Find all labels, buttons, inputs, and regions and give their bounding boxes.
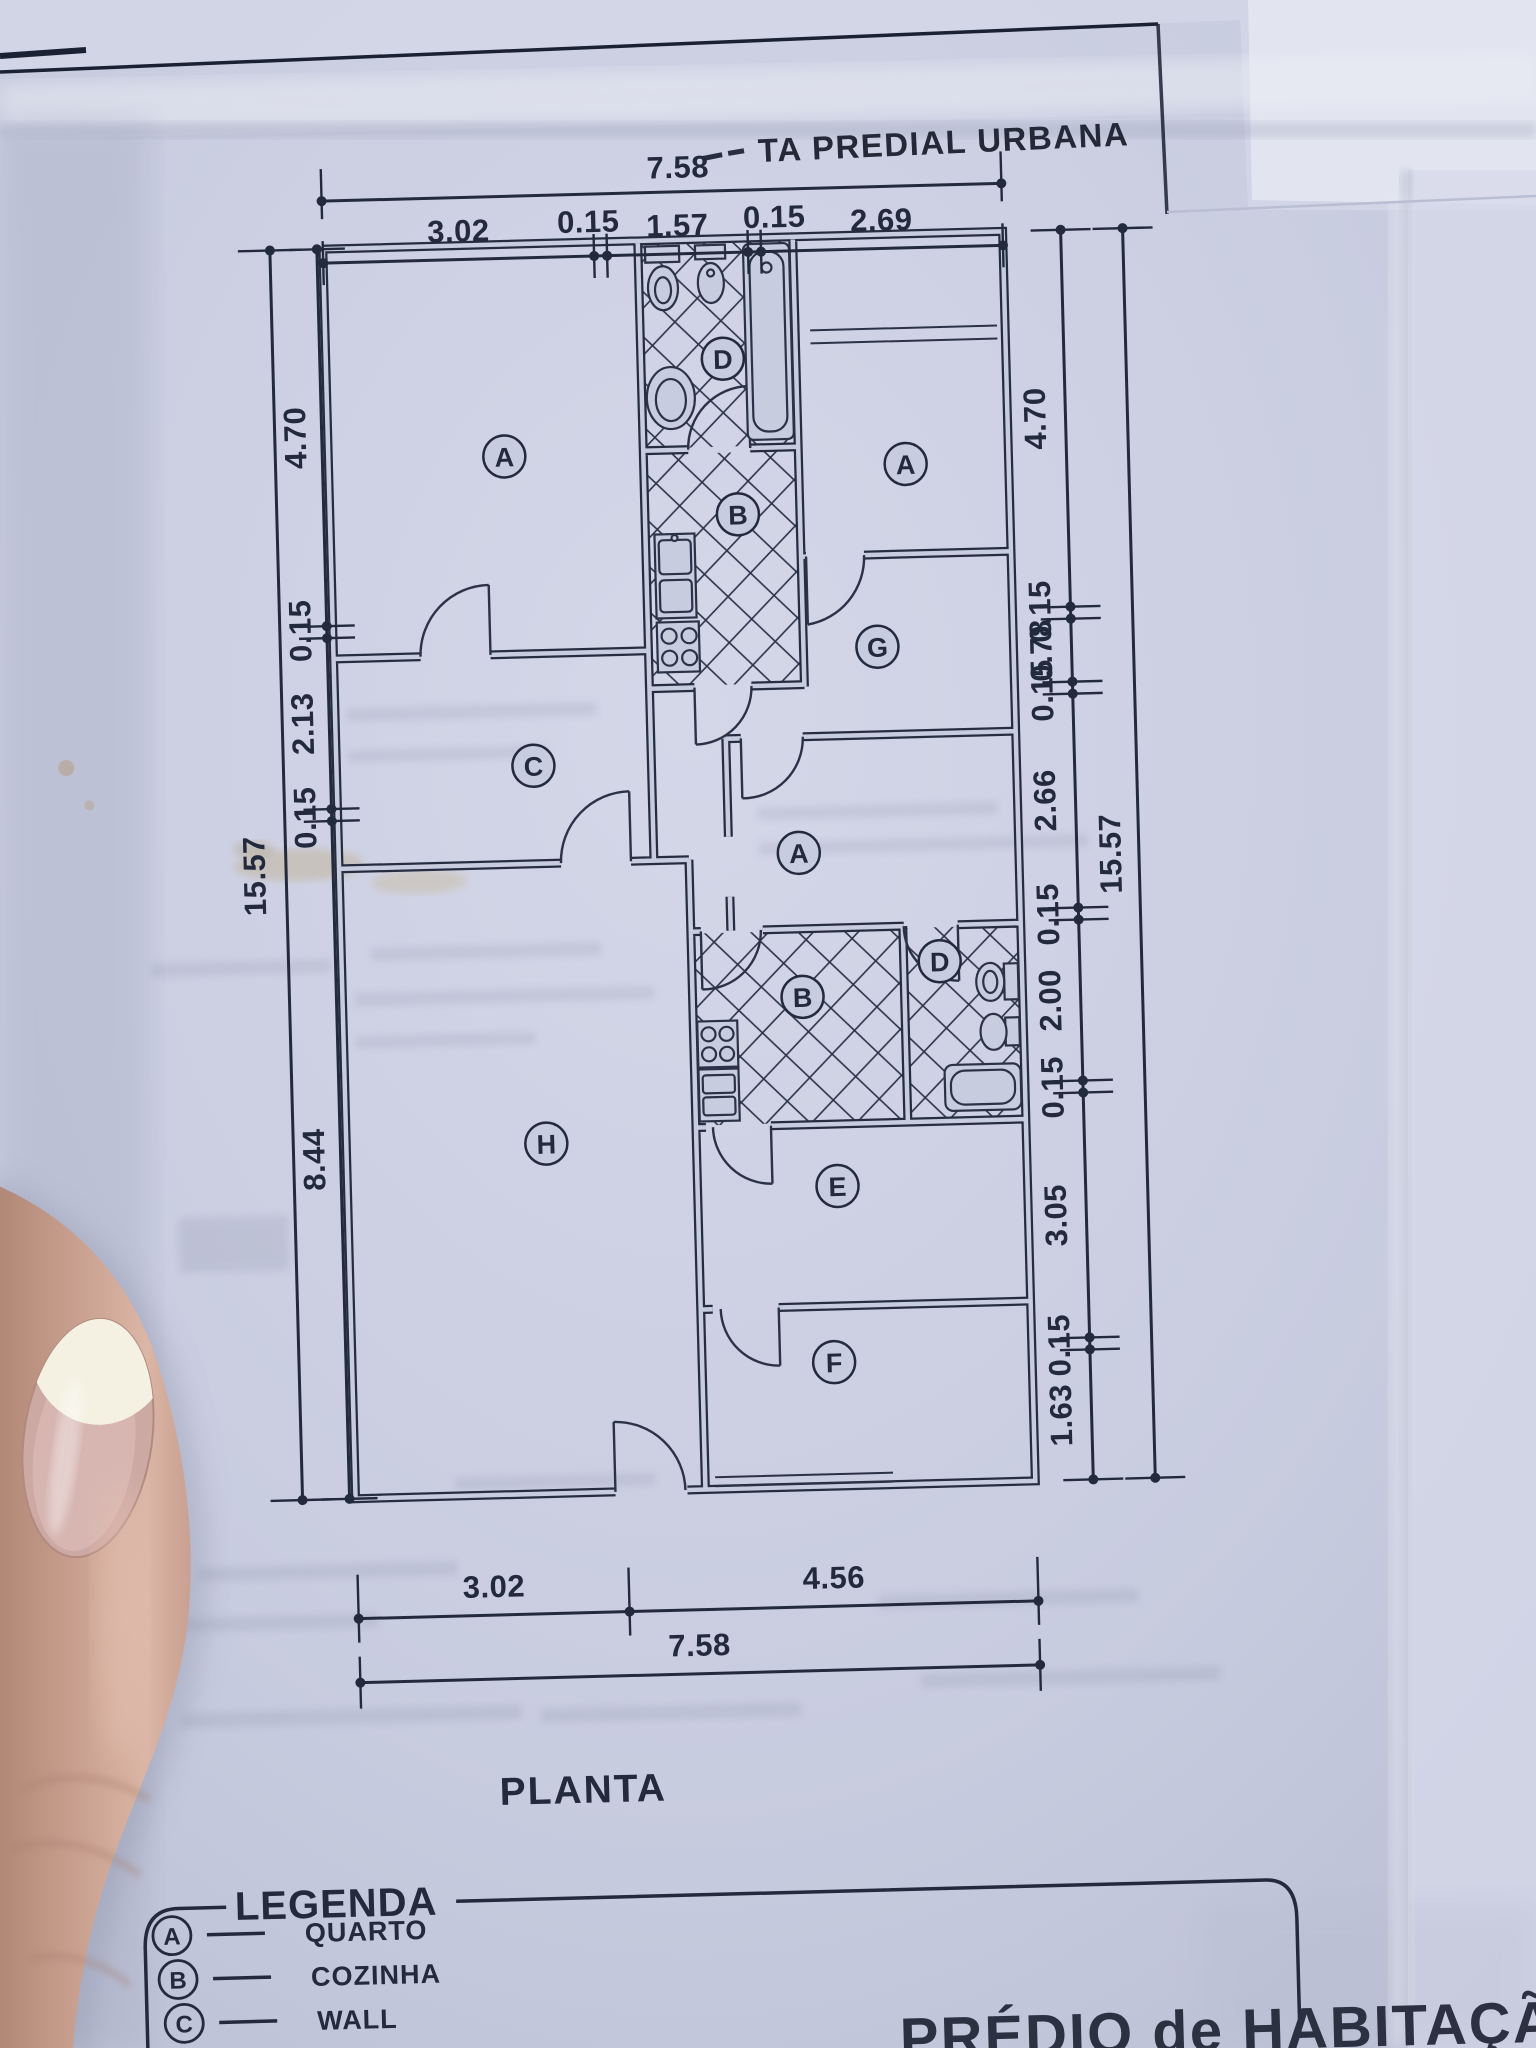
plan-title: PLANTA <box>499 1767 667 1814</box>
room-letter: B <box>728 500 748 531</box>
dim-left-seg-3: 0.15 <box>287 786 324 849</box>
room-label-e: E <box>816 1164 859 1207</box>
bidet-lower-icon <box>980 1013 1020 1050</box>
legend-dash <box>207 1933 265 1935</box>
room-letter: C <box>523 752 543 783</box>
legend-item-key: B <box>169 1967 187 1994</box>
room-label-bedroom-top-right: A <box>884 442 927 485</box>
room-label-kitchen-top: B <box>716 493 759 536</box>
room-letter: G <box>867 632 889 663</box>
dim-top-seg-0: 3.02 <box>427 213 490 250</box>
room-label-h: H <box>525 1122 568 1165</box>
dim-right-seg-3: 0.15 <box>1024 659 1061 722</box>
room-letter: E <box>828 1172 847 1202</box>
dim-right-seg-5: 0.15 <box>1030 883 1067 946</box>
dim-bottom-total: 7.58 <box>668 1627 731 1664</box>
legend-item-label: QUARTO <box>305 1915 428 1948</box>
dim-left-seg-1: 0.15 <box>282 599 319 662</box>
room-letter: A <box>789 839 809 870</box>
room-label-kitchen-lower: B <box>781 975 824 1018</box>
legend-item-key: C <box>175 2011 193 2038</box>
dim-left-total: 15.57 <box>236 836 273 917</box>
dim-right-seg-10: 1.63 <box>1043 1384 1080 1447</box>
dim-right-seg-7: 0.15 <box>1034 1056 1071 1119</box>
dim-top-total: 7.58 <box>646 149 709 186</box>
bleed-box <box>178 1215 289 1273</box>
dim-right-seg-4: 2.66 <box>1027 769 1064 832</box>
dim-top-seg-3: 0.15 <box>743 198 806 235</box>
room-label-bathroom-lower: D <box>918 940 961 983</box>
room-letter: H <box>536 1129 556 1160</box>
vertical-crease <box>1390 200 1412 2048</box>
room-letter: D <box>713 344 733 375</box>
dim-top-seg-2: 1.57 <box>646 207 709 244</box>
dim-right-total: 15.57 <box>1092 813 1129 894</box>
room-letter: B <box>792 983 812 1014</box>
dim-top-seg-4: 2.69 <box>850 202 913 239</box>
dim-left-seg-2: 2.13 <box>284 692 321 755</box>
dim-top-seg-1: 0.15 <box>557 203 620 240</box>
dim-right-seg-8: 3.05 <box>1038 1184 1075 1247</box>
dim-right-seg-0: 4.70 <box>1017 387 1054 450</box>
room-label-bedroom-top-left: A <box>483 435 526 478</box>
dim-right-seg-9: 0.15 <box>1041 1314 1078 1377</box>
bathtub-icon <box>743 243 794 440</box>
photographed-floor-plan-document: TA PREDIAL URBANA <box>0 0 1536 2048</box>
legend-dash <box>219 2021 277 2023</box>
room-letter: D <box>930 947 950 978</box>
kitchen-sink-icon <box>654 533 696 618</box>
dim-left-seg-0: 4.70 <box>277 406 314 469</box>
room-label-bathroom-top: D <box>701 337 744 380</box>
legend-item-key: A <box>163 1923 181 1950</box>
washbasin-icon <box>646 366 696 429</box>
kitchen-sink-lower-icon <box>698 1069 739 1122</box>
room-label-corridor: G <box>856 625 899 668</box>
room-letter: A <box>494 442 514 473</box>
sheet-behind-right <box>1408 170 1536 2048</box>
room-letter: F <box>826 1348 843 1378</box>
dim-bottom-seg-1: 4.56 <box>802 1559 865 1596</box>
bathtub-lower-icon <box>944 1063 1021 1111</box>
dim-left-seg-4: 8.44 <box>296 1128 333 1191</box>
room-letter: A <box>896 450 916 481</box>
dim-bottom-seg-0: 3.02 <box>462 1568 525 1605</box>
legend-dash <box>213 1977 271 1979</box>
toilet-lower-icon <box>976 962 1019 1001</box>
thumb-sheen <box>94 1480 146 1760</box>
dim-right-seg-6: 2.00 <box>1032 969 1069 1032</box>
legend-item-label: COZINHA <box>311 1959 442 1992</box>
stove-lower-icon <box>697 1021 738 1068</box>
stove-icon <box>657 621 700 672</box>
room-label-f: F <box>813 1341 856 1384</box>
room-label-bedroom-middle: A <box>777 831 820 874</box>
room-label-hall: C <box>512 744 555 787</box>
legend-item-label: WALL <box>317 2004 398 2036</box>
